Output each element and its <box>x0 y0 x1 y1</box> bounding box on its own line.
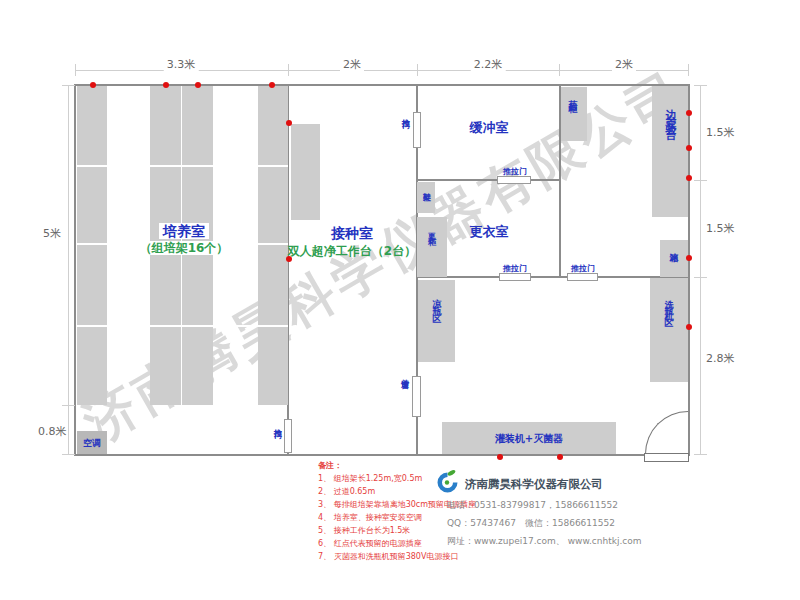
dimension-label: 2.2米 <box>471 57 506 72</box>
note-item: 5、 接种工作台长为1.5米 <box>318 524 410 537</box>
note-item: 7、 灭菌器和洗瓶机预留380V电源接口 <box>318 550 458 563</box>
dimension-tick <box>688 64 689 76</box>
dimension-label: 3.3米 <box>164 57 199 72</box>
dimension-label: 1.5米 <box>706 125 735 140</box>
dimension-tick <box>694 180 707 181</box>
rack-shelf-divider <box>77 325 288 327</box>
room-sublabel-culture: （组培架16个） <box>137 241 232 255</box>
wall-right <box>688 84 690 456</box>
sliding-door-buffer-dressing <box>497 176 531 184</box>
entry-door-swing-arc <box>645 411 688 454</box>
dimension-line-left <box>68 85 69 455</box>
filling-machine-label: 灌装机+灭菌器 <box>495 432 563 446</box>
fridge <box>660 240 688 277</box>
dimension-line-right <box>700 85 701 455</box>
entry-door-leaf <box>644 453 689 462</box>
dimension-tick <box>62 85 75 86</box>
wall-dressing-bottom <box>416 276 689 278</box>
wall-left <box>74 84 76 456</box>
floor-plan: 济南腾昊科学仪器有限公司 3. <box>0 0 800 600</box>
power-outlet-dot <box>686 110 692 116</box>
rack-shelf-divider <box>77 165 288 167</box>
company-logo-icon <box>434 469 461 496</box>
air-conditioner-label: 空调 <box>83 437 101 450</box>
sliding-door-label: 推拉门 <box>571 263 595 274</box>
power-outlet-dot <box>90 82 96 88</box>
company-qq-wechat: QQ：57437467 微信：15866611552 <box>447 517 615 530</box>
room-label-buffer: 缓冲室 <box>470 119 509 137</box>
pass-through-window <box>412 376 421 417</box>
power-outlet-dot <box>286 120 292 126</box>
culture-rack-column-1 <box>77 86 107 405</box>
company-website: 网址：www.zupei17.com、 www.cnhtkj.com <box>447 535 642 548</box>
power-outlet-dot <box>686 175 692 181</box>
dimension-label: 2.8米 <box>706 351 735 366</box>
clean-bench <box>291 124 320 220</box>
dimension-tick <box>694 277 707 278</box>
power-outlet-dot <box>497 454 503 460</box>
sliding-door-buffer-left <box>413 112 421 148</box>
sliding-door-dressing-bottom <box>499 273 531 281</box>
room-sublabel-inoculation: 双人超净工作台（2台） <box>285 244 419 258</box>
side-bench-label: 边台实验台 <box>662 100 677 125</box>
company-name: 济南腾昊科学仪器有限公司 <box>465 477 603 492</box>
power-outlet-dot <box>269 82 275 88</box>
dimension-label: 0.8米 <box>38 424 67 439</box>
dimension-tick <box>694 454 707 455</box>
dimension-label: 2米 <box>612 57 636 72</box>
company-phone: 电话：0531-83799817，15866611552 <box>447 499 618 512</box>
power-outlet-dot <box>686 324 692 330</box>
dimension-tick <box>694 85 707 86</box>
notes-title: 备注： <box>318 459 342 472</box>
dimension-tick <box>417 64 418 76</box>
note-item: 6、 红点代表预留的电源插座 <box>318 537 422 550</box>
wardrobe-label: 更衣柜 <box>425 226 436 235</box>
culture-rack-column-3 <box>258 86 288 405</box>
power-outlet-dot <box>557 454 563 460</box>
room-label-culture: 培养室 <box>159 223 209 239</box>
dimension-label: 2米 <box>340 57 364 72</box>
sliding-door-label: 推拉门 <box>503 166 527 177</box>
medicine-cabinet-label: 药品柜 <box>566 93 579 99</box>
dimension-tick <box>62 454 75 455</box>
cooling-area-label: 凉瓶区 <box>430 291 443 315</box>
dimension-tick <box>288 64 289 76</box>
power-outlet-dot <box>686 145 692 151</box>
room-label-inoculation: 接种室 <box>327 225 377 241</box>
dimension-tick <box>62 405 75 406</box>
dimension-label: 5米 <box>43 226 61 241</box>
dimension-label: 1.5米 <box>706 221 735 236</box>
power-outlet-dot <box>195 82 201 88</box>
power-outlet-dot <box>686 255 692 261</box>
dimension-tick <box>75 64 76 76</box>
bottle-washer-label: 洗瓶机区 <box>662 293 675 317</box>
note-item: 2、 过道0.65m <box>318 485 375 498</box>
power-outlet-dot <box>163 82 169 88</box>
shoe-rack <box>417 182 435 213</box>
sliding-door-label: 推拉门 <box>503 263 527 274</box>
note-item: 4、 培养室、接种室安装空调 <box>318 511 422 524</box>
room-label-dressing: 更衣室 <box>470 223 509 241</box>
note-item: 1、 组培架长1.25m,宽0.5m <box>318 472 422 485</box>
sliding-door-culture <box>284 419 292 453</box>
dimension-tick <box>559 64 560 76</box>
wall-buffer-dressing <box>416 179 561 181</box>
sliding-door-sideroom-bottom <box>567 273 598 281</box>
